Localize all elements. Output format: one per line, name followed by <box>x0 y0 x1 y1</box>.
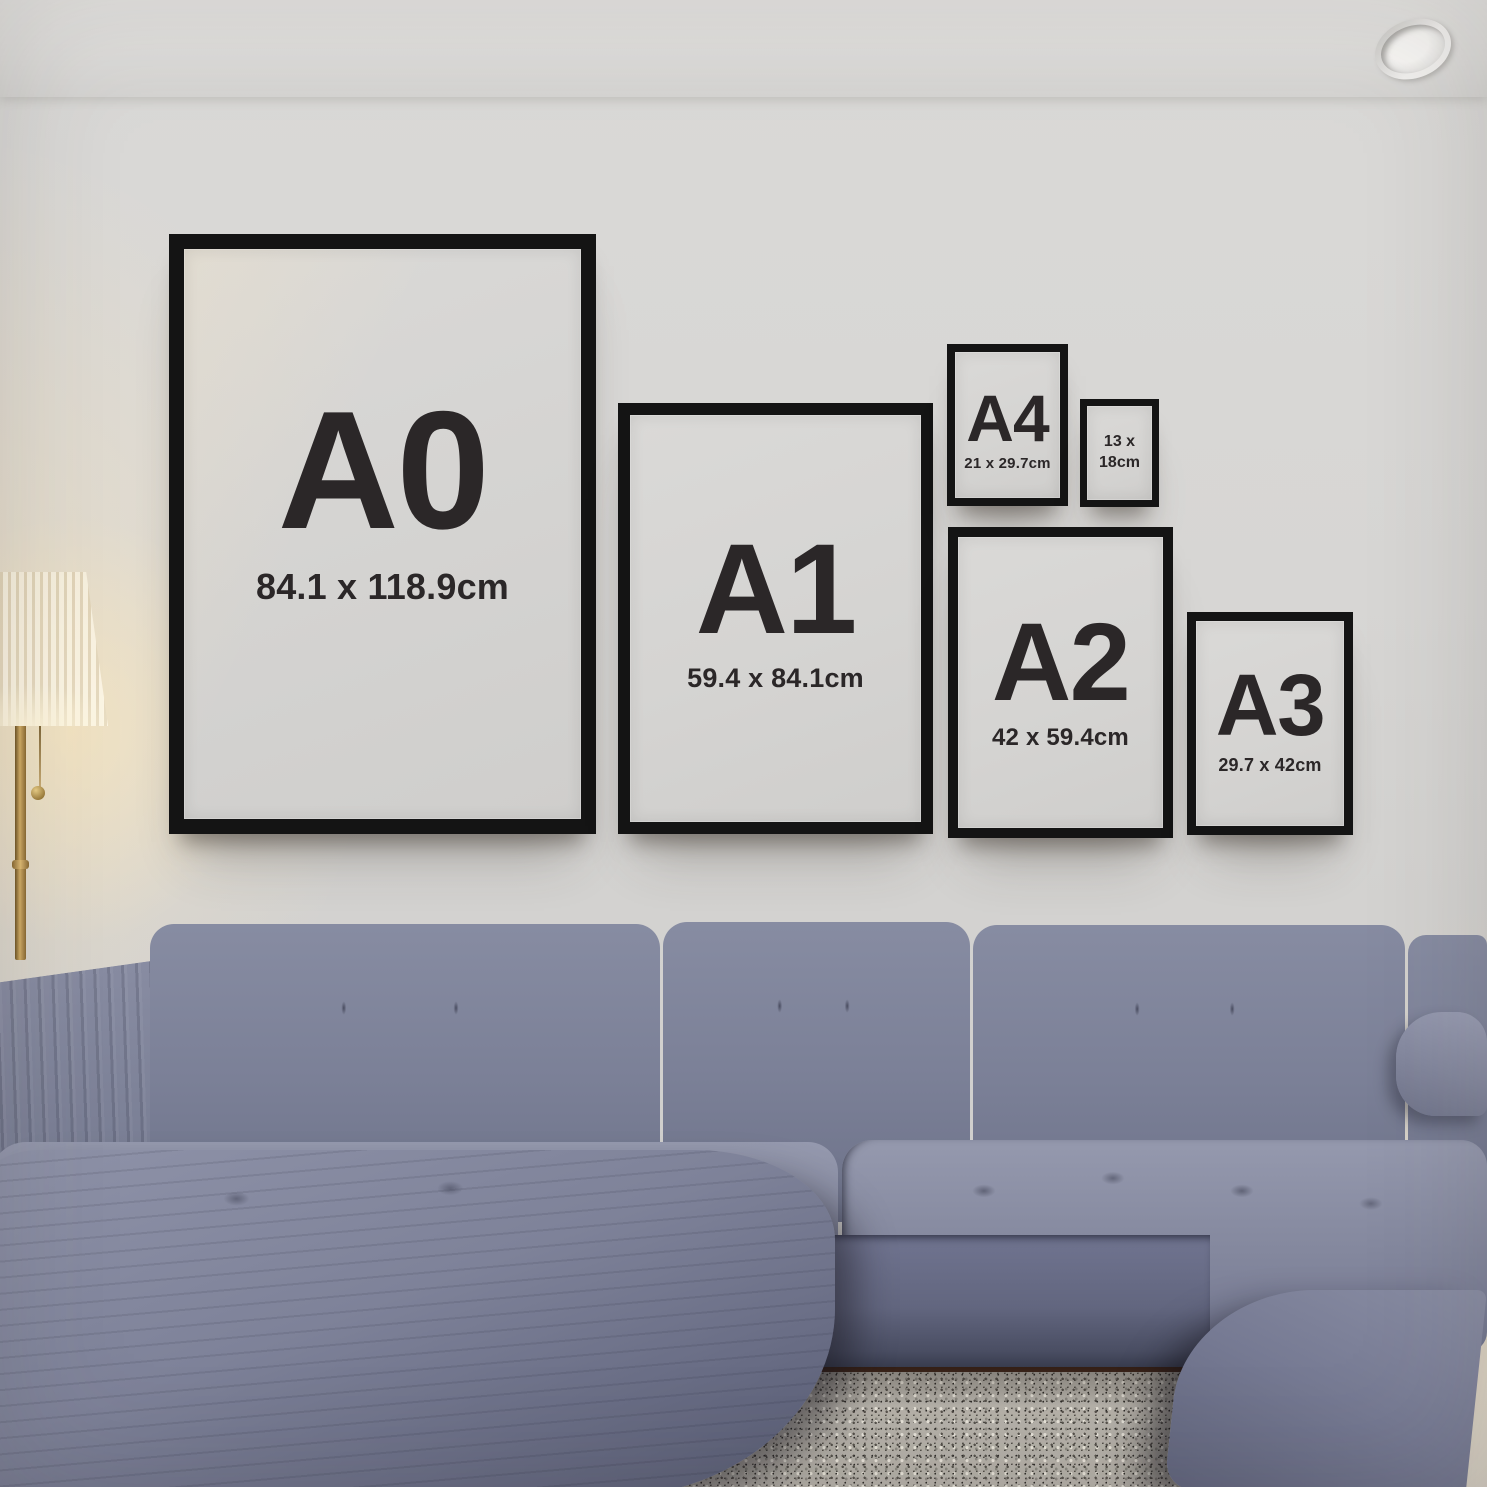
poster-13x18-size-line2: 18cm <box>1099 453 1140 474</box>
poster-a2-label-block: A2 42 x 59.4cm <box>992 609 1129 753</box>
lamp-pull-chain <box>39 724 41 788</box>
poster-a3-label-block: A3 29.7 x 42cm <box>1216 663 1325 775</box>
poster-a0-label-block: A0 84.1 x 118.9cm <box>256 388 509 609</box>
poster-13x18: 13 x 18cm <box>1087 406 1152 500</box>
poster-frame-a1: A1 59.4 x 84.1cm <box>618 403 933 834</box>
poster-a4-dimensions: 21 x 29.7cm <box>964 455 1050 472</box>
sofa-chaise-left <box>0 1150 835 1487</box>
poster-a2-size-label: A2 <box>992 609 1129 717</box>
poster-a0-dimensions: 84.1 x 118.9cm <box>256 566 509 608</box>
poster-a0: A0 84.1 x 118.9cm <box>184 249 581 819</box>
poster-frame-a0: A0 84.1 x 118.9cm <box>169 234 596 834</box>
poster-a0-size-label: A0 <box>278 388 488 553</box>
poster-a3: A3 29.7 x 42cm <box>1196 621 1344 826</box>
ceiling <box>0 0 1487 97</box>
living-room-scene: A0 84.1 x 118.9cm A1 59.4 x 84.1cm A4 21… <box>0 0 1487 1487</box>
lamp-pull-ball <box>31 786 45 800</box>
poster-a4-label-block: A4 21 x 29.7cm <box>964 386 1050 472</box>
poster-a1-label-block: A1 59.4 x 84.1cm <box>687 527 864 693</box>
poster-frame-a2: A2 42 x 59.4cm <box>948 527 1173 838</box>
poster-13x18-size-line1: 13 x <box>1104 432 1135 453</box>
poster-a1-dimensions: 59.4 x 84.1cm <box>687 663 864 694</box>
poster-a2-dimensions: 42 x 59.4cm <box>992 724 1129 752</box>
poster-13x18-label-block: 13 x 18cm <box>1099 432 1140 474</box>
poster-frame-a3: A3 29.7 x 42cm <box>1187 612 1353 835</box>
poster-a4-size-label: A4 <box>966 386 1048 451</box>
poster-a3-size-label: A3 <box>1216 663 1325 748</box>
lamp-pole-joint <box>12 860 29 869</box>
sofa-right-arm-cushion <box>1396 1012 1487 1116</box>
poster-a3-dimensions: 29.7 x 42cm <box>1218 755 1321 776</box>
lamp-pole <box>15 718 26 960</box>
poster-frame-13x18: 13 x 18cm <box>1080 399 1159 507</box>
poster-a1: A1 59.4 x 84.1cm <box>630 415 921 822</box>
poster-a1-size-label: A1 <box>696 527 856 652</box>
poster-a2: A2 42 x 59.4cm <box>958 537 1163 828</box>
poster-frame-a4: A4 21 x 29.7cm <box>947 344 1068 506</box>
poster-a4: A4 21 x 29.7cm <box>955 352 1060 498</box>
